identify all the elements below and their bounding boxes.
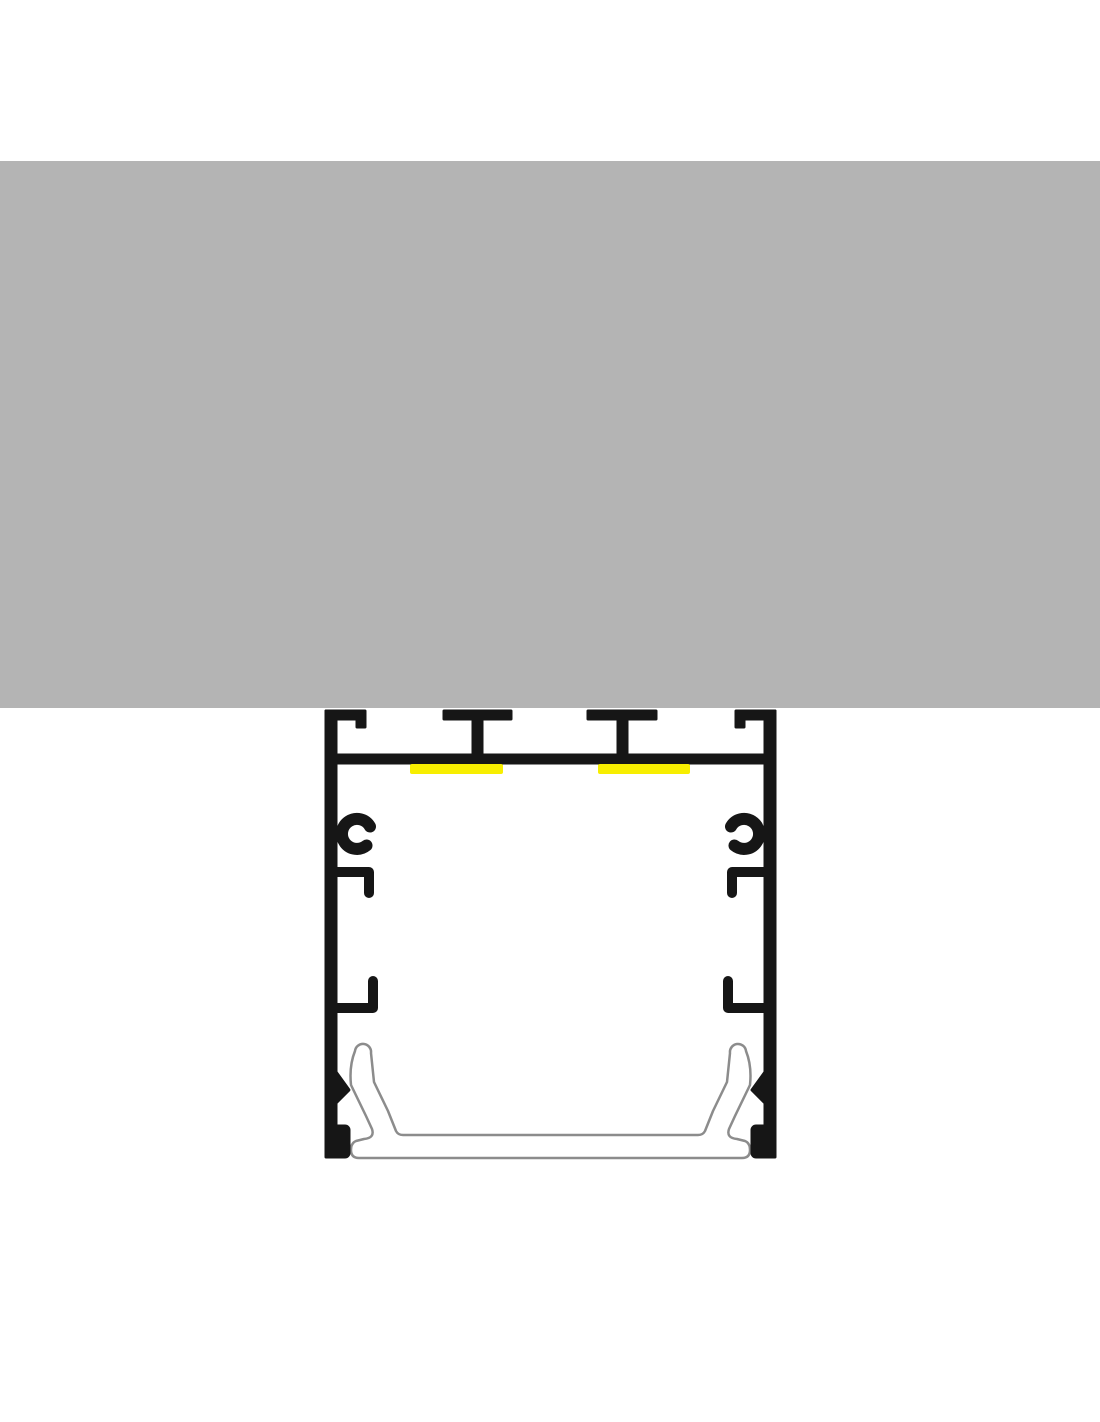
t-screw-rail-left [444, 711, 511, 757]
t-screw-rail-right [588, 711, 656, 757]
diffuser-cover [351, 1044, 751, 1158]
led-strip-left [410, 764, 503, 774]
screw-port-left [342, 819, 370, 849]
bottom-foot-left [326, 1126, 349, 1157]
retainer-barb-right [752, 1072, 765, 1103]
channel-bottom-plate [326, 755, 775, 763]
ceiling-surface [0, 161, 1100, 708]
bottom-foot-right [752, 1126, 775, 1157]
led-strip-right [598, 764, 690, 774]
screw-port-right [731, 819, 759, 849]
accessory-hook-left [336, 872, 369, 893]
aluminium-profile [326, 711, 775, 1157]
led-strips [410, 764, 690, 774]
accessory-hook-right [732, 872, 765, 893]
profile-cross-section-diagram [0, 0, 1100, 1422]
diagram-canvas [0, 0, 1100, 1422]
retainer-barb-left [336, 1072, 349, 1103]
clip-tab-right [728, 981, 765, 1008]
clip-tab-left [336, 981, 373, 1008]
